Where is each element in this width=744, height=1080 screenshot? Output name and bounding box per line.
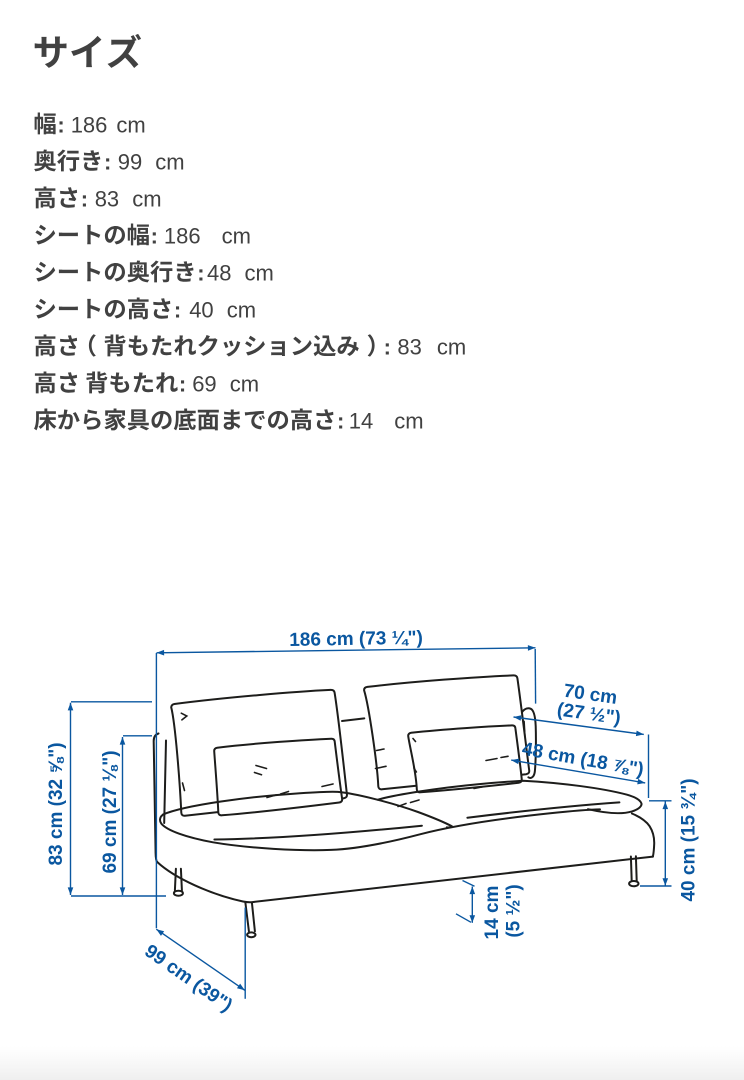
svg-text:186 cm (73 ¼"): 186 cm (73 ¼"): [289, 628, 423, 651]
svg-text:cm: cm: [155, 149, 184, 174]
svg-text:cm: cm: [230, 371, 259, 396]
svg-text:14: 14: [349, 408, 373, 433]
svg-text:83: 83: [397, 334, 421, 359]
svg-text::: :: [384, 334, 391, 359]
svg-text:cm: cm: [222, 223, 251, 248]
svg-text:cm: cm: [394, 408, 423, 433]
svg-text:cm: cm: [132, 186, 161, 211]
svg-text:cm: cm: [116, 112, 145, 137]
svg-text:186: 186: [164, 223, 201, 248]
svg-text:cm: cm: [245, 260, 274, 285]
svg-text::: :: [151, 223, 158, 248]
svg-text:cm: cm: [227, 297, 256, 322]
svg-text::: :: [57, 112, 64, 137]
svg-text::: :: [337, 408, 344, 433]
svg-text:69 cm (27 ⅛"): 69 cm (27 ⅛"): [100, 750, 121, 873]
svg-text:cm: cm: [437, 334, 466, 359]
svg-text::: :: [179, 371, 186, 396]
svg-text:83 cm (32 ⅝"): 83 cm (32 ⅝"): [46, 742, 67, 865]
svg-text:69: 69: [192, 371, 216, 396]
svg-text::: :: [174, 297, 181, 322]
svg-text:83: 83: [95, 186, 119, 211]
svg-text:(5 ½"): (5 ½"): [503, 884, 524, 937]
svg-text::: :: [81, 186, 88, 211]
svg-text:40 cm (15 ¾"): 40 cm (15 ¾"): [678, 778, 699, 901]
svg-text:48: 48: [207, 260, 231, 285]
svg-text:40: 40: [189, 297, 213, 322]
svg-text::: :: [104, 149, 111, 174]
svg-text:99: 99: [118, 149, 142, 174]
svg-text:14 cm: 14 cm: [482, 886, 503, 940]
svg-text::: :: [197, 260, 204, 285]
svg-text:186: 186: [71, 112, 108, 137]
